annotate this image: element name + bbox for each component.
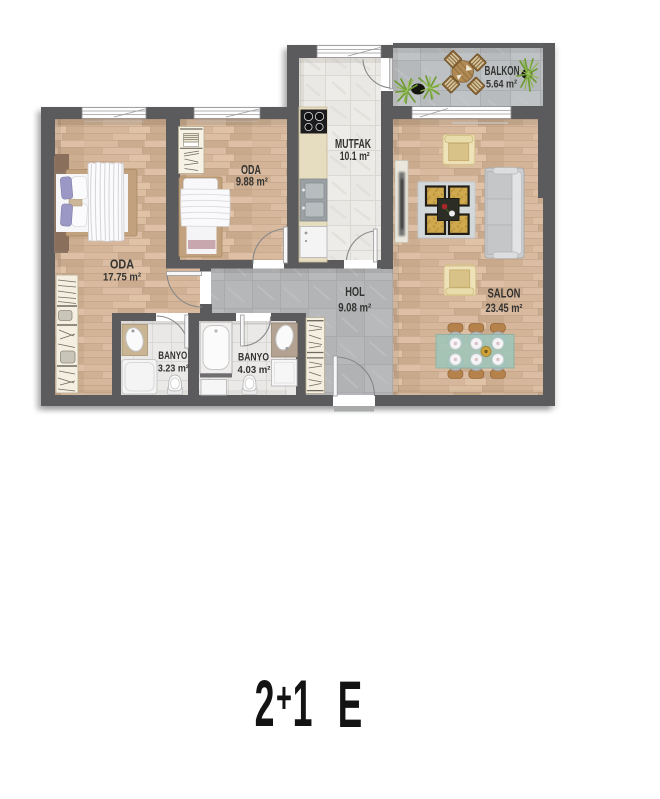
svg-text:BALKON: BALKON	[485, 64, 520, 78]
svg-text:BANYO: BANYO	[238, 352, 269, 364]
svg-text:+: +	[276, 673, 292, 722]
svg-text:10.1 m²: 10.1 m²	[340, 151, 371, 163]
svg-text:MUTFAK: MUTFAK	[335, 137, 371, 151]
svg-text:ODA: ODA	[241, 164, 261, 178]
svg-text:BANYO: BANYO	[158, 350, 187, 363]
svg-text:HOL: HOL	[345, 286, 365, 300]
svg-text:4.03 m²: 4.03 m²	[238, 365, 272, 376]
svg-text:9.88 m²: 9.88 m²	[236, 177, 268, 189]
svg-text:23.45 m²: 23.45 m²	[486, 303, 523, 315]
svg-text:1: 1	[293, 668, 313, 741]
svg-text:ODA: ODA	[110, 257, 134, 272]
svg-text:E: E	[338, 669, 363, 742]
svg-text:9.08 m²: 9.08 m²	[338, 302, 371, 315]
svg-text:2: 2	[255, 668, 275, 741]
svg-text:5.64 m²: 5.64 m²	[486, 79, 517, 91]
svg-text:SALON: SALON	[488, 287, 521, 301]
svg-text:3.23 m²: 3.23 m²	[158, 363, 190, 375]
svg-text:17.75 m²: 17.75 m²	[103, 271, 141, 284]
